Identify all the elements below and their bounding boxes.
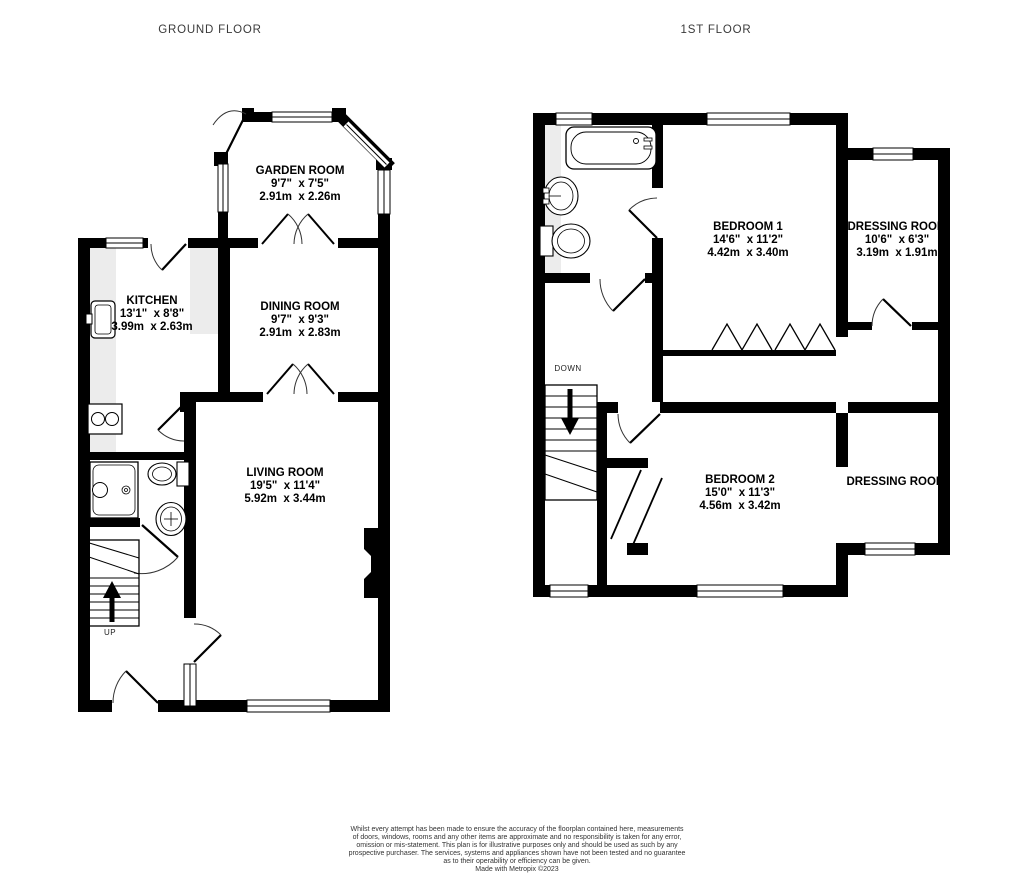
window [106,238,143,248]
toilet-icon [148,462,189,486]
room-size-imperial: 15'0" x 11'3" [699,487,780,500]
room-label-dining-room: DINING ROOM 9'7" x 9'3" 2.91m x 2.83m [259,301,340,340]
room-size-imperial: 10'6" x 6'3" [847,234,946,247]
room-name: BEDROOM 2 [699,474,780,487]
hob-icon [88,404,122,434]
room-label-bedroom-2: BEDROOM 2 15'0" x 11'3" 4.56m x 3.42m [699,474,780,513]
ground-floor-windows [106,112,390,712]
disclaimer-line: as to their operability or efficiency ca… [349,858,686,866]
closet-doors [611,470,662,547]
basin-icon [543,177,578,215]
front-door-swing [113,671,158,703]
room-label-dressing-room-2: DRESSING ROOM [846,476,945,489]
room-label-dressing-room-1: DRESSING ROOM 10'6" x 6'3" 3.19m x 1.91m [847,221,946,260]
floorplan-drawing [0,0,1024,874]
room-size-imperial: 9'7" x 7'5" [256,178,345,191]
window [556,113,592,125]
room-name: GARDEN ROOM [256,165,345,178]
bathtub-icon [566,127,656,169]
room-label-garden-room: GARDEN ROOM 9'7" x 7'5" 2.91m x 2.26m [256,165,345,204]
ground-floor-plan [78,108,392,712]
room-size-imperial: 19'5" x 11'4" [244,480,325,493]
double-door-swing [262,214,334,244]
staircase-down [545,385,597,500]
staircase-up [86,540,139,626]
room-size-metric: 4.42m x 3.40m [707,247,788,260]
disclaimer-line: prospective purchaser. The services, sys… [349,850,686,858]
window [272,112,332,122]
door-swing [629,198,657,238]
door-swing [872,299,911,326]
disclaimer: Whilst every attempt has been made to en… [349,826,686,873]
room-label-bedroom-1: BEDROOM 1 14'6" x 11'2" 4.42m x 3.40m [707,221,788,260]
door-swing [213,111,246,158]
window [865,543,915,555]
window [247,700,330,712]
glazed-panel [184,664,196,706]
room-name: LIVING ROOM [244,467,325,480]
door-swing [600,279,645,311]
toilet-icon [540,224,590,258]
first-floor-walls [533,113,950,597]
room-name: BEDROOM 1 [707,221,788,234]
door-swing [194,624,221,662]
room-size-metric: 3.99m x 2.63m [111,321,192,334]
room-size-imperial: 13'1" x 8'8" [111,308,192,321]
window [707,113,790,125]
disclaimer-line: of doors, windows, rooms and any other i… [349,834,686,842]
basin-icon [156,503,186,536]
window [218,164,228,212]
floorplan-page: GROUND FLOOR 1ST FLOOR GARDEN ROOM 9'7" … [0,0,1024,874]
room-name: KITCHEN [111,295,192,308]
room-name: DINING ROOM [259,301,340,314]
ground-floor-walls [78,108,392,712]
room-name: DRESSING ROOM [847,221,946,234]
chimney-breast [364,528,380,598]
double-door-swing [267,364,334,394]
disclaimer-line: omission or mis-statement. This plan is … [349,842,686,850]
window [873,148,913,160]
room-size-imperial: 9'7" x 9'3" [259,314,340,327]
stairs-up-label: UP [104,628,116,637]
room-size-metric: 2.91m x 2.83m [259,327,340,340]
stairs-down-label: DOWN [554,364,581,373]
bay-angled-window [341,117,391,167]
window [550,585,588,597]
credit-line: Made with Metropix ©2023 [349,866,686,874]
door-swing [618,414,660,443]
window [697,585,783,597]
door-swing [151,244,186,270]
room-size-metric: 4.56m x 3.42m [699,500,780,513]
room-name: DRESSING ROOM [846,476,945,489]
shower-icon [90,462,138,518]
ground-floor-title: GROUND FLOOR [158,24,262,36]
room-size-metric: 2.91m x 2.26m [256,191,345,204]
first-floor-title: 1ST FLOOR [681,24,752,36]
window [378,170,390,214]
room-size-imperial: 14'6" x 11'2" [707,234,788,247]
room-label-living-room: LIVING ROOM 19'5" x 11'4" 5.92m x 3.44m [244,467,325,506]
disclaimer-line: Whilst every attempt has been made to en… [349,826,686,834]
room-label-kitchen: KITCHEN 13'1" x 8'8" 3.99m x 2.63m [111,295,192,334]
room-size-metric: 5.92m x 3.44m [244,493,325,506]
room-size-metric: 3.19m x 1.91m [847,247,946,260]
bifold-wardrobe-doors [712,324,835,350]
first-floor-plan [533,113,950,597]
